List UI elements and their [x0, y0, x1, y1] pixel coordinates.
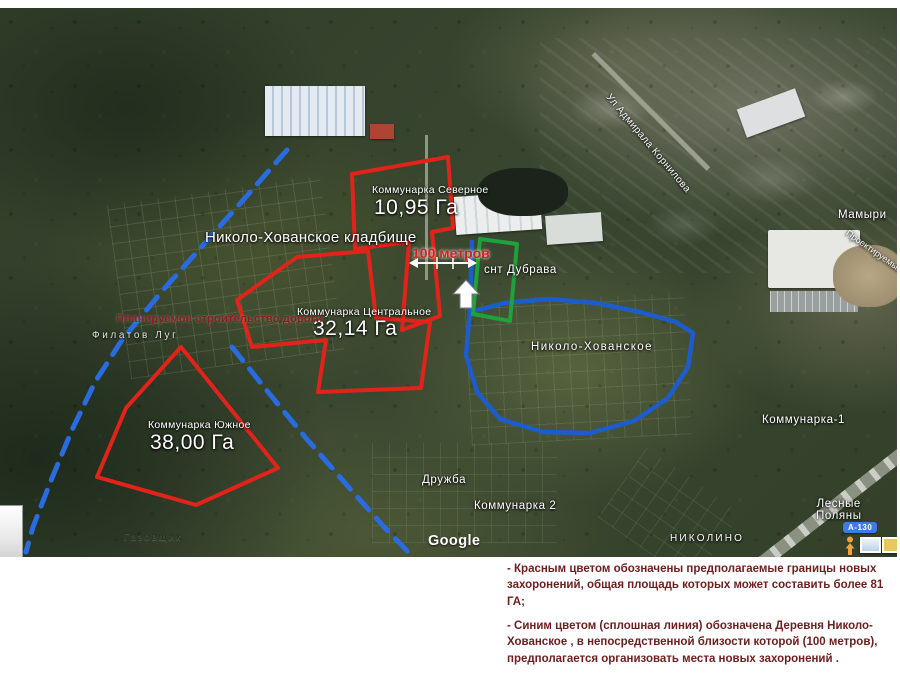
- lesnye-polyany-label: Лесные Поляны: [816, 498, 862, 522]
- legend-red-item: - Красным цветом обозначены предполагаем…: [507, 561, 899, 610]
- area-north-value: 10,95 Га: [374, 196, 458, 220]
- industrial-complex-building: [265, 86, 365, 136]
- area-south-name: Коммунарка Южное: [148, 419, 251, 431]
- druzhba-streets-grid: [372, 443, 557, 543]
- filatov-lug-label: Филатов Луг: [92, 330, 178, 341]
- document-page: Николо-Хованское кладбище Коммунарка Сев…: [0, 0, 900, 636]
- map-layer-thumbnail-2[interactable]: [882, 537, 897, 553]
- kommunarka1-label: Коммунарка-1: [762, 414, 845, 426]
- village-streets-grid: [464, 292, 691, 445]
- scale-label: 100 метров: [412, 245, 490, 261]
- lake: [478, 168, 568, 216]
- area-north-name: Коммунарка Северное: [372, 184, 489, 196]
- village-label: Николо-Хованское: [531, 341, 653, 353]
- kommunarka2-label: Коммунарка 2: [474, 500, 556, 512]
- area-central-value: 32,14 Га: [313, 317, 397, 341]
- mamyri-label: Мамыри: [838, 209, 887, 221]
- nikolino-label: НИКОЛИНО: [670, 533, 744, 544]
- satellite-map: Николо-Хованское кладбище Коммунарка Сев…: [0, 8, 897, 557]
- cemetery-label: Николо-Хованское кладбище: [205, 229, 416, 246]
- google-watermark: Google: [428, 533, 480, 549]
- planned-road-label: Планируемое строительство дороги: [116, 313, 323, 325]
- red-roof-building: [370, 124, 394, 139]
- snt-dubrava-label: снт Дубрава: [484, 264, 557, 276]
- road-number-badge: А-130: [843, 522, 877, 533]
- legend-text-block: - Красным цветом обозначены предполагаем…: [507, 561, 899, 675]
- area-south-value: 38,00 Га: [150, 431, 234, 455]
- warehouse-building-2: [545, 212, 603, 245]
- map-layer-thumbnail-1[interactable]: [860, 537, 881, 553]
- pegman-icon[interactable]: [843, 536, 857, 556]
- cemetery-plots-grid: [107, 176, 344, 379]
- left-edge-artifact: [0, 505, 23, 557]
- legend-blue-item: - Синим цветом (сплошная линия) обозначе…: [507, 618, 899, 667]
- gazovshchik-label: Газовщик: [124, 532, 182, 543]
- druzhba-label: Дружба: [422, 474, 466, 486]
